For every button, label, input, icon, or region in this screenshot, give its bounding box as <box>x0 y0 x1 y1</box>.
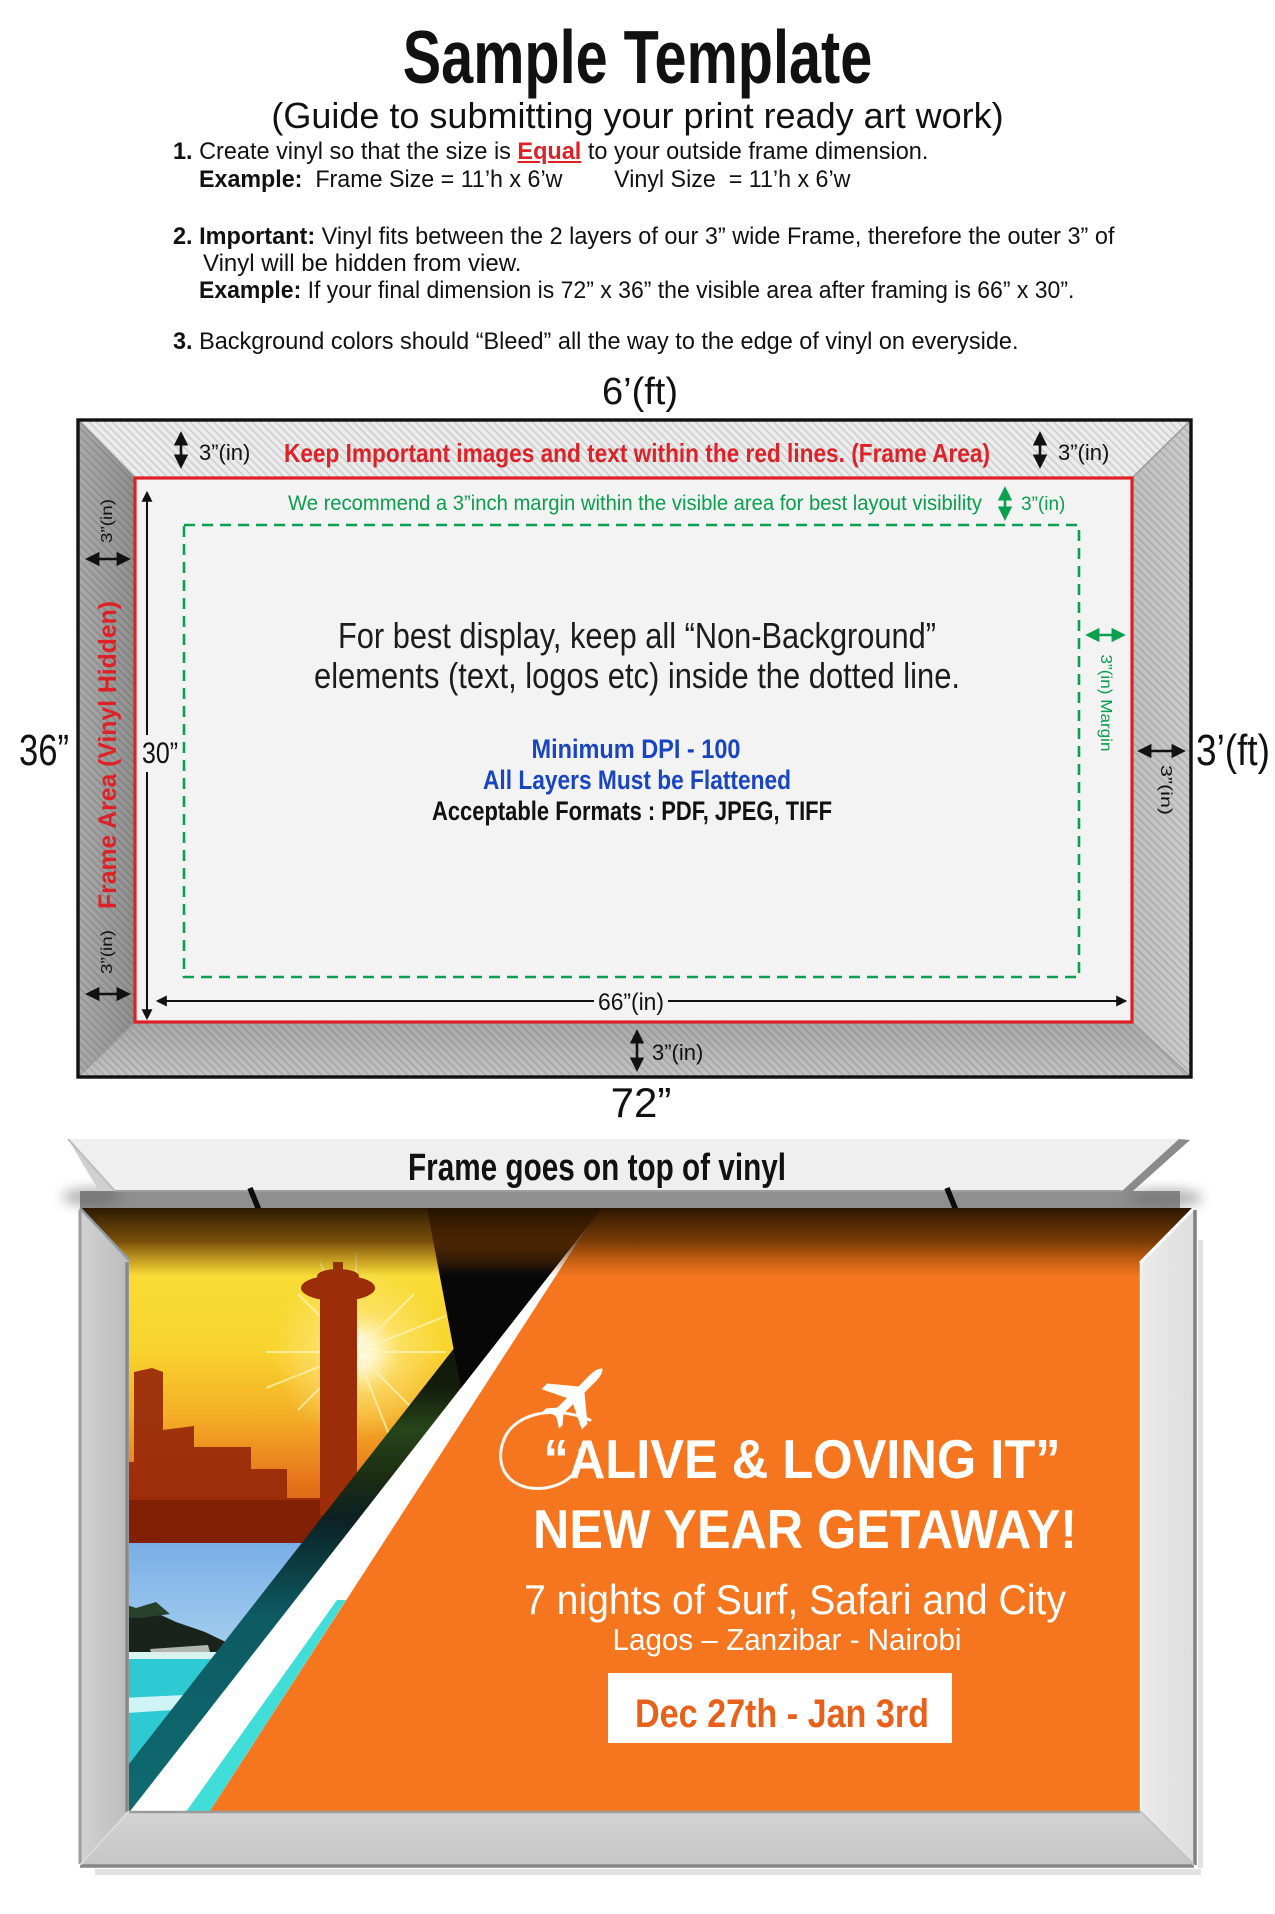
svg-text:3”(in): 3”(in) <box>1157 765 1174 815</box>
svg-text:Lagos – Zanzibar - Nairobi: Lagos – Zanzibar - Nairobi <box>613 1622 962 1657</box>
svg-text:72”: 72” <box>611 1079 672 1126</box>
svg-text:3”(in): 3”(in) <box>199 440 250 465</box>
svg-text:36”: 36” <box>19 726 69 775</box>
svg-text:3”(in) Margin: 3”(in) Margin <box>1097 655 1114 752</box>
svg-text:3”(in): 3”(in) <box>1058 440 1109 465</box>
svg-text:“ALIVE & LOVING IT”: “ALIVE & LOVING IT” <box>544 1428 1061 1490</box>
svg-text:3”(in): 3”(in) <box>99 499 116 543</box>
svg-text:Frame goes on top of vinyl: Frame goes on top of vinyl <box>408 1147 786 1189</box>
svg-text:We recommend a 3”inch margin w: We recommend a 3”inch margin within the … <box>288 492 982 515</box>
svg-text:Dec 27th - Jan 3rd: Dec 27th - Jan 3rd <box>635 1692 929 1736</box>
svg-text:30”: 30” <box>142 737 178 770</box>
svg-text:Minimum DPI - 100: Minimum DPI - 100 <box>532 734 741 764</box>
svg-text:3”(in): 3”(in) <box>652 1040 703 1065</box>
svg-text:elements (text, logos etc) ins: elements (text, logos etc) inside the do… <box>314 655 960 696</box>
svg-text:All Layers Must be Flattened: All Layers Must be Flattened <box>483 765 791 795</box>
svg-text:Keep Important images and text: Keep Important images and text within th… <box>284 438 990 468</box>
svg-text:Acceptable Formats : PDF, JPEG: Acceptable Formats : PDF, JPEG, TIFF <box>432 796 832 826</box>
svg-text:For best display, keep all “No: For best display, keep all “Non-Backgrou… <box>338 615 936 656</box>
svg-text:NEW YEAR GETAWAY!: NEW YEAR GETAWAY! <box>533 1498 1077 1560</box>
svg-text:3”(in): 3”(in) <box>99 930 116 974</box>
svg-text:6’(ft): 6’(ft) <box>602 371 678 413</box>
svg-text:7 nights of Surf, Safari and C: 7 nights of Surf, Safari and City <box>524 1576 1066 1623</box>
svg-text:Frame Area (Vinyl Hidden): Frame Area (Vinyl Hidden) <box>94 601 122 909</box>
svg-text:3’(ft): 3’(ft) <box>1196 726 1270 775</box>
svg-text:66”(in): 66”(in) <box>598 989 664 1016</box>
svg-text:3”(in): 3”(in) <box>1021 494 1065 515</box>
